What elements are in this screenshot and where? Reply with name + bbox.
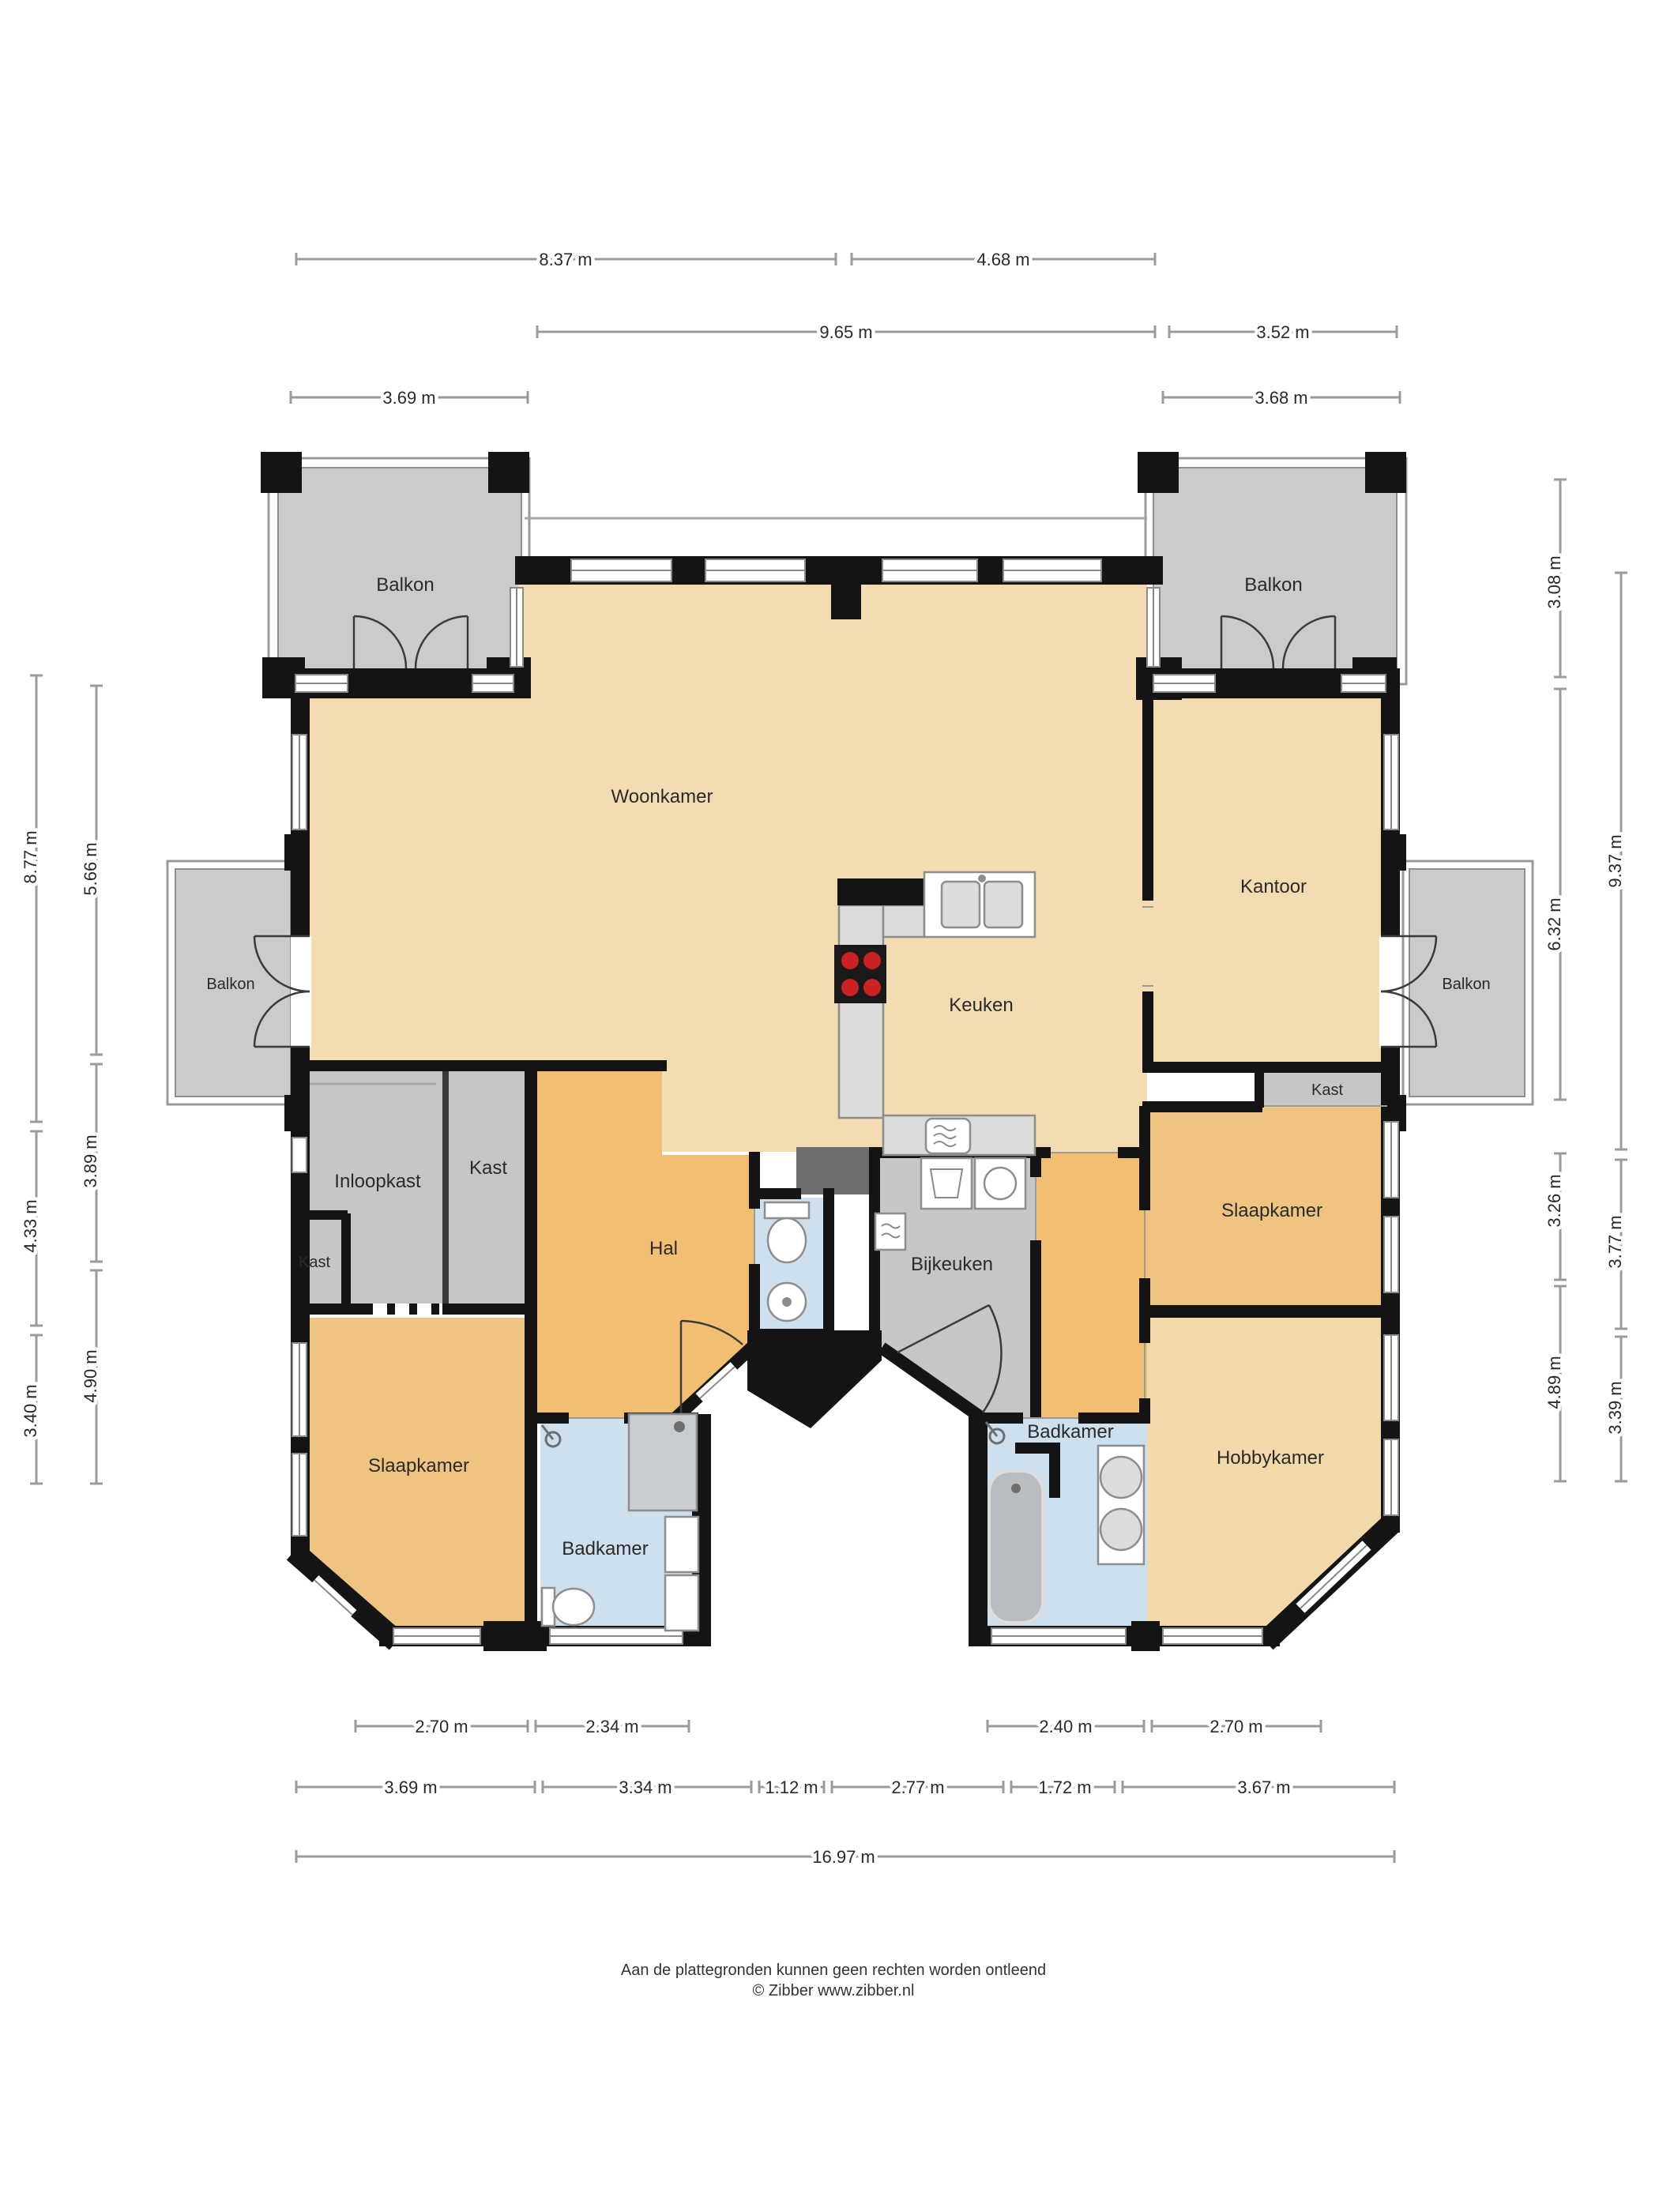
washbasin-drain [782, 1297, 792, 1307]
boiler-icon [875, 1213, 905, 1250]
shower-tray [629, 1414, 697, 1510]
wall-notch-apex [747, 1330, 882, 1428]
wall-closet-divider [442, 1071, 449, 1310]
label-slaapkamer-l: Slaapkamer [368, 1455, 469, 1477]
dim-right: 4.89 m [1544, 1356, 1564, 1409]
post [1365, 452, 1406, 493]
post [488, 452, 529, 493]
burner-icon [841, 952, 859, 969]
dim-top: 9.65 m [819, 322, 872, 342]
floor-plan-page: Balkon Balkon Balkon Balkon Woonkamer Ka… [0, 0, 1659, 2212]
post [284, 834, 310, 871]
wall-toilet-n [749, 1188, 801, 1199]
wall-office-west-b [1142, 991, 1153, 1070]
sink-bowl-1 [942, 882, 980, 927]
corridor-floor [1035, 1152, 1147, 1418]
wall-toilet-w-b [749, 1264, 760, 1340]
dim-top: 3.69 m [382, 388, 435, 408]
label-badkamer-l: Badkamer [562, 1538, 648, 1559]
dim-right: 3.39 m [1605, 1381, 1625, 1434]
vanity-cabinet [665, 1517, 698, 1572]
dim-right: 3.26 m [1544, 1174, 1564, 1227]
wall-bedroomr-north [1142, 1101, 1262, 1112]
dim-top: 8.37 m [539, 250, 592, 269]
label-balkon-l: Balkon [206, 976, 254, 993]
post [284, 1095, 310, 1131]
wall-closet-east [525, 1060, 537, 1321]
vanity-sink [1100, 1457, 1142, 1498]
kitchen-counter-left [839, 905, 883, 1118]
dim-right: 6.32 m [1544, 897, 1564, 950]
wall-toilet-s [749, 1329, 834, 1340]
label-kast-klein: Kast [299, 1254, 330, 1271]
wall-kast-klein-e [341, 1213, 351, 1315]
dim-left: 3.89 m [81, 1134, 100, 1187]
post [1138, 452, 1179, 493]
dim-bottom: 2.70 m [415, 1717, 468, 1736]
wall-bedrooml-east [525, 1318, 537, 1637]
footer: Aan de plattegronden kunnen geen rechten… [621, 1962, 1046, 1999]
label-balkon-tr: Balkon [1244, 574, 1302, 596]
label-kast-hal: Kast [469, 1157, 507, 1179]
dim-left: 3.40 m [21, 1384, 40, 1437]
label-kast-kantoor: Kast [1311, 1082, 1343, 1099]
dim-bottom-total: 16.97 m [812, 1847, 875, 1867]
bathtub [989, 1471, 1043, 1623]
wall-closet-north [295, 1060, 667, 1071]
toilet-bowl [768, 1218, 806, 1262]
wall-closet-south [295, 1303, 537, 1315]
dim-left: 4.33 m [21, 1199, 40, 1252]
dim-left: 5.66 m [81, 842, 100, 895]
bathtub-faucet [1011, 1484, 1021, 1493]
post [1131, 1621, 1160, 1651]
wall-kitchen-south-b [1118, 1147, 1147, 1158]
label-badkamer-r: Badkamer [1027, 1421, 1113, 1443]
label-inloopkast: Inloopkast [334, 1171, 421, 1192]
footer-disclaimer: Aan de plattegronden kunnen geen rechten… [621, 1962, 1046, 1979]
burner-icon [863, 979, 881, 996]
stove [834, 945, 886, 1003]
dim-bottom: 2.40 m [1039, 1717, 1092, 1736]
dim-top: 4.68 m [976, 250, 1029, 269]
wall-kast-klein-n [295, 1210, 348, 1220]
wall-stub-top [831, 585, 861, 619]
floor-plan-canvas: Balkon Balkon Balkon Balkon Woonkamer Ka… [0, 0, 1659, 2212]
dim-top: 3.52 m [1256, 322, 1309, 342]
wall-toilet-e [823, 1188, 834, 1340]
wall-toilet-w-a [749, 1152, 760, 1209]
footer-copyright: © Zibber www.zibber.nl [753, 1982, 915, 1999]
dim-bottom: 2.34 m [585, 1717, 638, 1736]
dim-right: 3.08 m [1544, 555, 1564, 608]
label-balkon-r: Balkon [1442, 976, 1490, 993]
faucet-icon [978, 875, 986, 882]
dim-top: 3.68 m [1255, 388, 1307, 408]
vanity-sink [1100, 1509, 1142, 1550]
kitchen-wall-stub [837, 878, 924, 905]
wall-bathl-north-a [525, 1413, 569, 1424]
toilet-cistern [765, 1202, 809, 1218]
wall-office-west-a [1142, 698, 1153, 901]
dim-bottom: 3.69 m [384, 1777, 437, 1797]
burner-icon [863, 952, 881, 969]
dim-left: 8.77 m [21, 830, 40, 883]
balcony-top-right-floor [1153, 468, 1397, 673]
post [1381, 834, 1406, 871]
wall-corridor-east-b [1139, 1278, 1150, 1343]
wall-utility-east-b [1030, 1240, 1041, 1419]
label-woonkamer: Woonkamer [611, 786, 713, 807]
wall-stub-bathr-v [1049, 1454, 1060, 1498]
toilet-bowl [553, 1589, 594, 1625]
microwave-icon [926, 1119, 970, 1153]
dim-right: 3.77 m [1605, 1215, 1625, 1268]
wall-stub-bathr-h [1015, 1443, 1060, 1454]
dim-right: 9.37 m [1605, 834, 1625, 887]
washing-machine-icon [975, 1158, 1025, 1209]
sink-bowl-2 [984, 882, 1022, 927]
shaft [796, 1147, 871, 1194]
label-keuken: Keuken [949, 995, 1013, 1016]
post [261, 452, 302, 493]
wall-notch-right [969, 1414, 987, 1646]
label-balkon-tl: Balkon [376, 574, 434, 596]
kitchen-counter-corner [883, 905, 924, 937]
label-bijkeuken: Bijkeuken [911, 1254, 993, 1275]
wall-office-south [1142, 1062, 1400, 1073]
dim-bottom: 3.34 m [619, 1777, 671, 1797]
wall-bedroomr-south [1142, 1305, 1400, 1318]
label-hal: Hal [649, 1238, 678, 1259]
label-slaapkamer-r: Slaapkamer [1221, 1200, 1322, 1221]
laundry-basket-icon [921, 1158, 972, 1209]
burner-icon [841, 979, 859, 996]
dim-bottom: 1.12 m [765, 1777, 818, 1797]
dim-bottom: 2.70 m [1209, 1717, 1262, 1736]
dim-bottom: 3.67 m [1237, 1777, 1290, 1797]
label-hobbykamer: Hobbykamer [1217, 1447, 1324, 1469]
dim-left: 4.90 m [81, 1349, 100, 1402]
dim-bottom: 2.77 m [891, 1777, 944, 1797]
label-kantoor: Kantoor [1240, 876, 1307, 897]
hobby-floor [1147, 1311, 1390, 1643]
vanity-cabinet [665, 1575, 698, 1631]
shower-drain [674, 1421, 685, 1432]
dim-bottom: 1.72 m [1038, 1777, 1091, 1797]
